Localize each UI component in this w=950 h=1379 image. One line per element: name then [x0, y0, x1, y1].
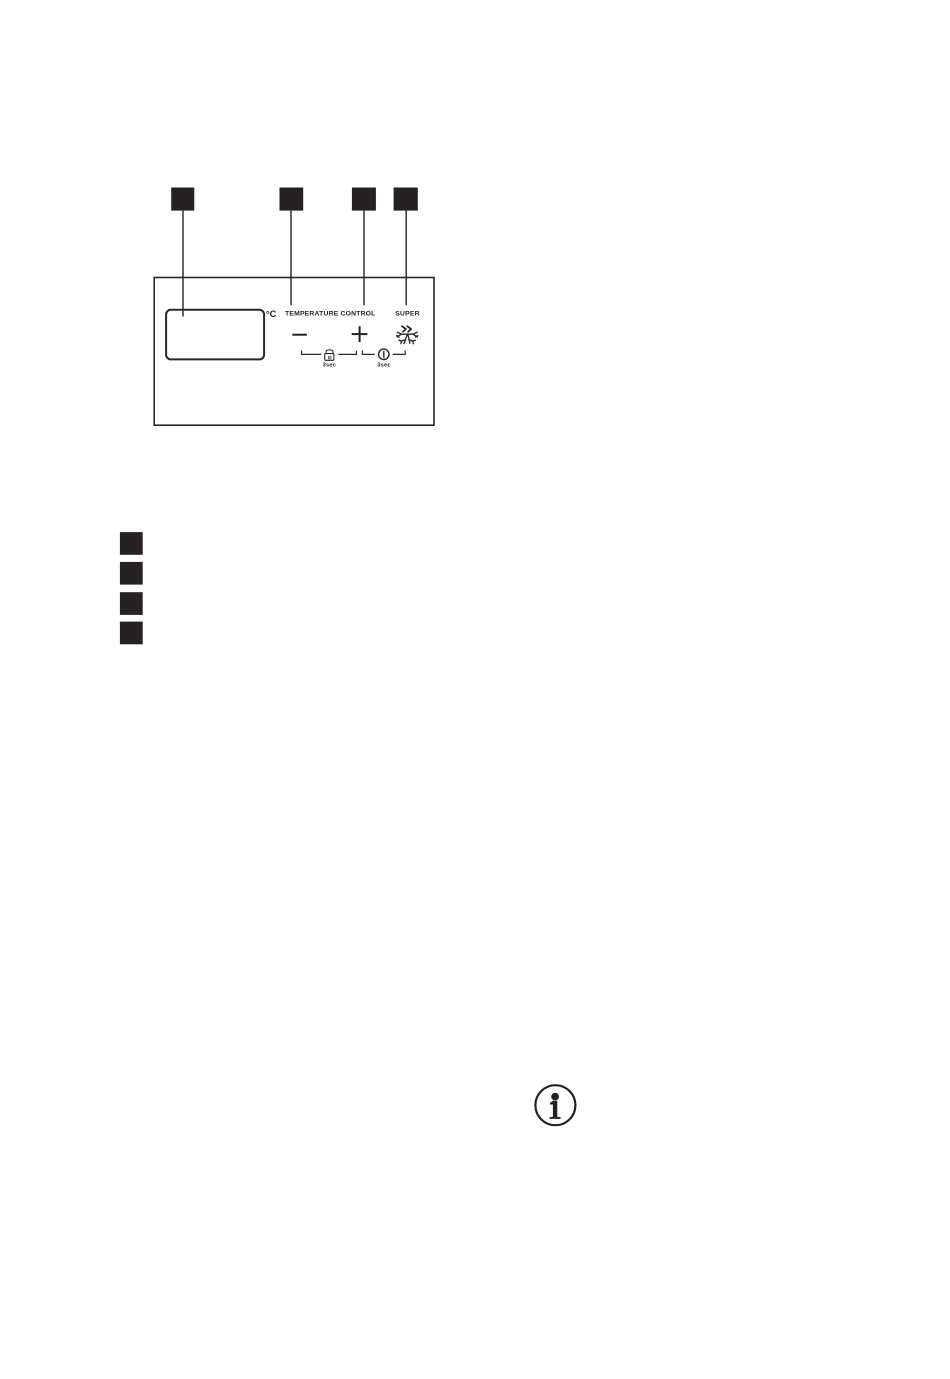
svg-text:3sec: 3sec	[377, 363, 390, 369]
svg-text:3sec: 3sec	[323, 363, 336, 369]
svg-text:TEMPERATURE CONTROL: TEMPERATURE CONTROL	[285, 311, 376, 318]
svg-text:°C: °C	[266, 309, 277, 319]
svg-text:SUPER: SUPER	[395, 311, 419, 318]
